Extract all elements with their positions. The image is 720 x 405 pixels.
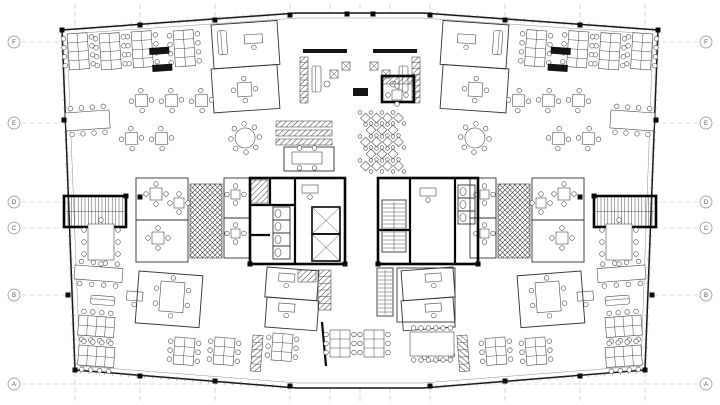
grid-bubble-A-left: A [8,378,20,390]
grid-bubble-F-left: F [8,36,20,48]
column [138,23,143,28]
column [643,368,648,373]
column [656,28,661,33]
grid-bubble-E-right: E [700,117,712,129]
grid-bubble-label: B [704,293,708,299]
column [60,28,65,33]
sofa [605,295,630,306]
column [288,13,293,18]
grid-bubble-D-left: D [8,196,20,208]
sofa [90,295,115,306]
column [592,194,597,199]
locker-row [318,270,331,310]
column [138,195,143,200]
grid-bubble-C-left: C [8,222,20,234]
lounge-chair [330,70,338,78]
floor-plan-image: FFEEDDCCBBAA [0,0,720,405]
locker-row [300,57,308,103]
solid-furniture [303,49,347,53]
column [428,384,433,389]
sofa [217,30,228,55]
crosshatched-zone [498,184,530,258]
exterior-wall [62,13,658,388]
side-table [324,81,330,87]
grid-bubble-A-right: A [700,378,712,390]
solid-furniture [353,88,368,96]
grid-bubble-label: F [12,40,16,46]
lounge-chair [342,62,350,70]
grid-bubble-label: C [12,226,17,232]
grid-bubble-label: E [704,121,708,127]
column [213,379,218,384]
column [343,262,348,267]
grid-bubble-E-left: E [8,117,20,129]
solid-furniture [149,47,169,55]
grid-bubble-B-right: B [700,289,712,301]
column [503,379,508,384]
grid-bubble-C-right: C [700,222,712,234]
column [654,118,659,123]
column [213,18,218,23]
sofa [312,66,321,92]
hatched-area [276,121,332,127]
hatched-area [276,139,332,145]
crosshatched-zone [190,184,222,258]
column [376,262,381,267]
column [476,262,481,267]
solid-furniture [373,49,417,53]
grid-bubble-label: F [704,40,708,46]
column [138,374,143,379]
grid-bubble-label: D [12,200,17,206]
grid-bubble-label: C [704,226,709,232]
grid-bubble-B-left: B [8,289,20,301]
hatched-area [251,180,268,203]
grid-bubble-F-right: F [700,36,712,48]
hatched-area [276,130,332,136]
column [288,384,293,389]
column [650,293,655,298]
column [73,368,78,373]
floor-plan: FFEEDDCCBBAA [0,0,720,405]
sofa [492,30,503,55]
hatched-area [383,77,413,84]
grid-bubble-label: E [12,121,16,127]
solid-furniture [152,64,172,72]
column [503,18,508,23]
column [578,23,583,28]
column [62,118,67,123]
column [248,262,253,267]
column [345,12,350,17]
column [371,12,376,17]
solid-furniture [550,47,570,55]
grid-bubble-label: A [704,382,708,388]
column [578,374,583,379]
column [428,13,433,18]
column [124,194,129,199]
solid-furniture [547,64,567,72]
lounge-chair [370,62,378,70]
grid-bubble-label: A [12,382,16,388]
grid-bubble-label: D [704,200,709,206]
grid-bubble-D-right: D [700,196,712,208]
column [66,293,71,298]
column [578,195,583,200]
grid-bubble-label: B [12,293,16,299]
hatched-area [298,270,316,282]
